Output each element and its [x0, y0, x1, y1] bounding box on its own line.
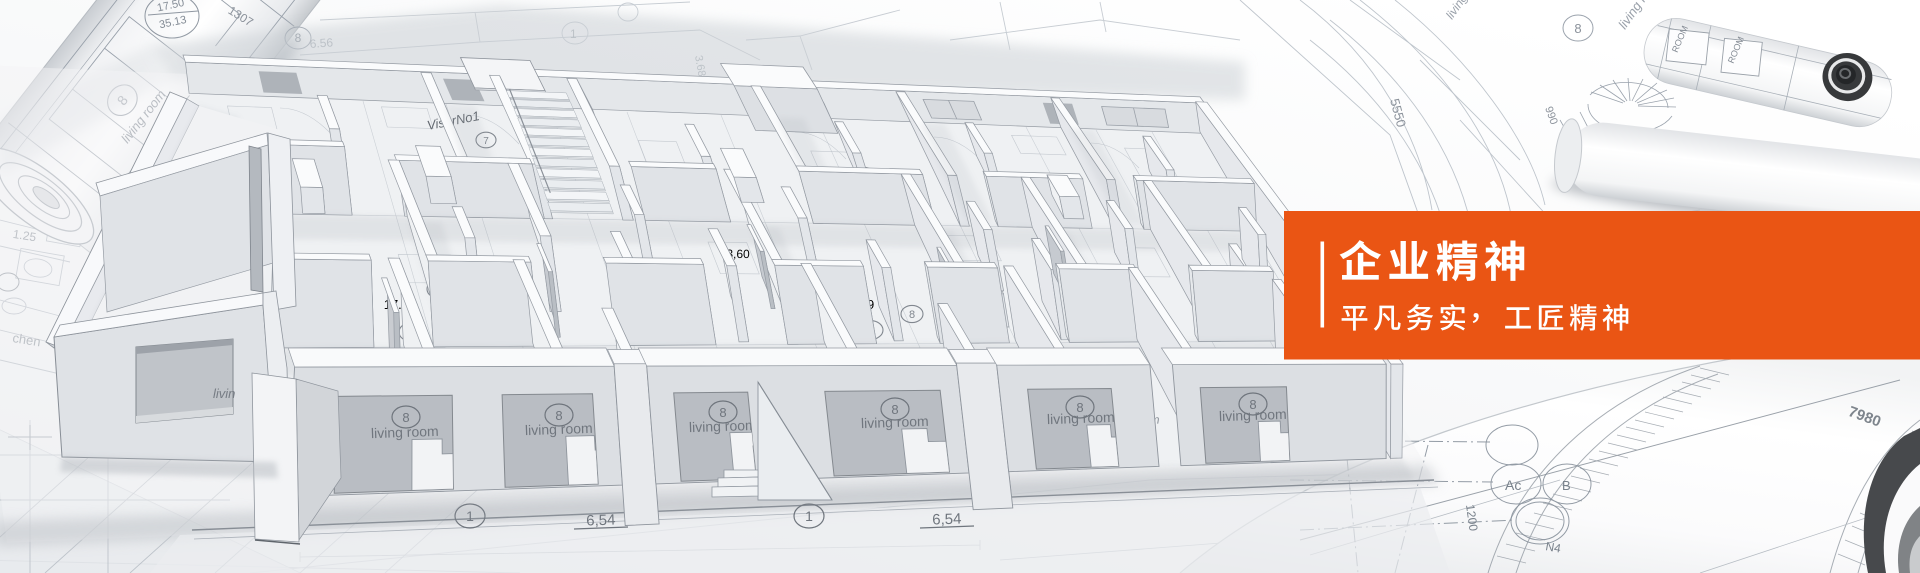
- svg-text:1: 1: [805, 508, 813, 524]
- svg-text:8: 8: [909, 309, 915, 321]
- svg-text:B: B: [1562, 478, 1571, 493]
- svg-text:N4: N4: [1544, 539, 1562, 556]
- svg-text:8: 8: [402, 410, 409, 425]
- svg-text:livin: livin: [213, 386, 235, 401]
- svg-text:8: 8: [1574, 21, 1581, 36]
- svg-text:living room: living room: [525, 420, 593, 438]
- svg-text:6,54: 6,54: [932, 510, 962, 528]
- svg-text:living room: living room: [371, 423, 439, 441]
- svg-text:Ac: Ac: [1505, 477, 1521, 493]
